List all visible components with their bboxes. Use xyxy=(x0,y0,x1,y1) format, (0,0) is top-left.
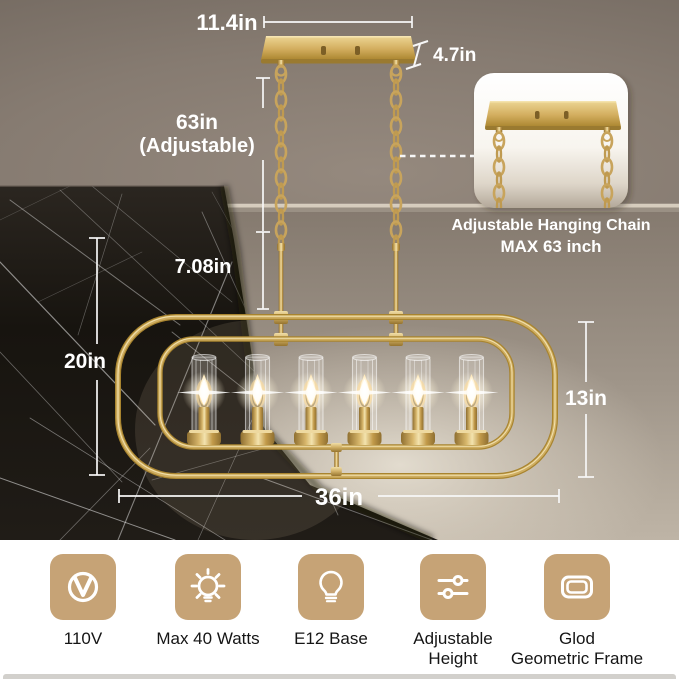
feature-adjustable-height: Adjustable Height xyxy=(383,554,523,669)
sliders-icon xyxy=(420,554,486,620)
frame-icon xyxy=(544,554,610,620)
chain-note-label: (Adjustable) xyxy=(139,135,255,157)
canopy-width-label: 11.4in xyxy=(196,10,257,35)
canopy-depth-label: 4.7in xyxy=(433,45,476,66)
next-image-edge xyxy=(3,674,676,679)
bulb-base-icon xyxy=(298,554,364,620)
chandelier-photo: 11.4in 4.7in 63in (Adjustable) 7.08in 20… xyxy=(0,0,679,540)
chain-detail-inset: Adjustable Hanging Chain MAX 63 inch xyxy=(451,73,650,256)
feature-voltage: 110V xyxy=(13,554,153,649)
feature-strip: 110V Max 40 Watts xyxy=(0,540,679,679)
feature-label: Max 40 Watts xyxy=(138,629,278,649)
feature-bulb-base: E12 Base xyxy=(261,554,401,649)
inset-caption-line2: MAX 63 inch xyxy=(500,237,601,256)
chain-length-label: 63in xyxy=(176,111,218,134)
overall-height-label: 20in xyxy=(64,350,106,373)
voltage-icon xyxy=(50,554,116,620)
inset-caption-line1: Adjustable Hanging Chain xyxy=(451,217,650,234)
product-dimension-image: 11.4in 4.7in 63in (Adjustable) 7.08in 20… xyxy=(0,0,679,679)
feature-label: E12 Base xyxy=(261,629,401,649)
feature-label: Adjustable Height xyxy=(383,629,523,669)
wattage-icon xyxy=(175,554,241,620)
frame-height-label: 13in xyxy=(565,387,607,410)
stem-length-label: 7.08in xyxy=(175,256,232,278)
feature-label: 110V xyxy=(13,629,153,649)
feature-wattage: Max 40 Watts xyxy=(138,554,278,649)
frame-width-label: 36in xyxy=(315,484,363,511)
feature-gold-frame: Glod Geometric Frame xyxy=(507,554,647,669)
feature-label: Glod Geometric Frame xyxy=(507,629,647,669)
